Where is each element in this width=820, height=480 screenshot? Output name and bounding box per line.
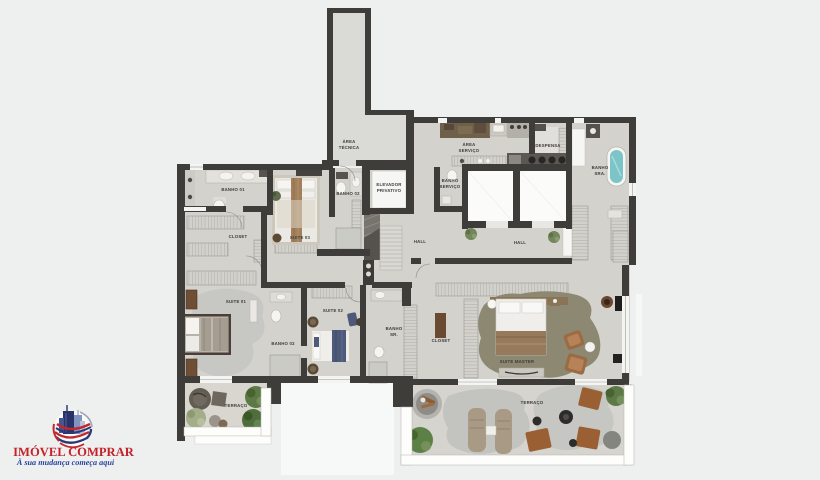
svg-text:TERRAÇO: TERRAÇO <box>225 403 248 408</box>
svg-text:SUITE MASTER: SUITE MASTER <box>500 359 535 364</box>
svg-text:IMÓVEL COMPRAR: IMÓVEL COMPRAR <box>13 445 135 459</box>
svg-text:ELEVADOR: ELEVADOR <box>376 182 402 187</box>
svg-text:CLOSET: CLOSET <box>229 234 248 239</box>
svg-text:BANHO 02: BANHO 02 <box>336 191 360 196</box>
svg-text:SERVIÇO: SERVIÇO <box>459 148 480 153</box>
svg-text:TERRAÇO: TERRAÇO <box>521 400 544 405</box>
svg-text:BANHO 02: BANHO 02 <box>271 341 295 346</box>
svg-text:SERVIÇO: SERVIÇO <box>440 184 461 189</box>
svg-text:À sua mudança começa aqui: À sua mudança começa aqui <box>16 457 115 467</box>
svg-text:TÉCNICA: TÉCNICA <box>339 145 360 150</box>
svg-text:ÁREA: ÁREA <box>343 139 356 144</box>
svg-text:SUITE 01: SUITE 01 <box>226 299 247 304</box>
svg-text:BANHO: BANHO <box>386 326 403 331</box>
svg-text:BANHO: BANHO <box>592 165 609 170</box>
svg-text:ÁREA: ÁREA <box>463 142 476 147</box>
svg-text:SUITE 02: SUITE 02 <box>323 308 344 313</box>
svg-text:HALL: HALL <box>514 240 526 245</box>
svg-text:SUITE 03: SUITE 03 <box>290 235 311 240</box>
svg-text:PRIVATIVO: PRIVATIVO <box>377 188 402 193</box>
svg-text:BANHO: BANHO <box>442 178 459 183</box>
svg-text:CLOSET: CLOSET <box>432 338 451 343</box>
svg-text:SR.: SR. <box>390 332 398 337</box>
svg-text:SRA.: SRA. <box>594 171 605 176</box>
svg-text:DESPENSA: DESPENSA <box>535 143 560 148</box>
svg-text:HALL: HALL <box>414 239 426 244</box>
svg-text:BANHO 01: BANHO 01 <box>221 187 245 192</box>
